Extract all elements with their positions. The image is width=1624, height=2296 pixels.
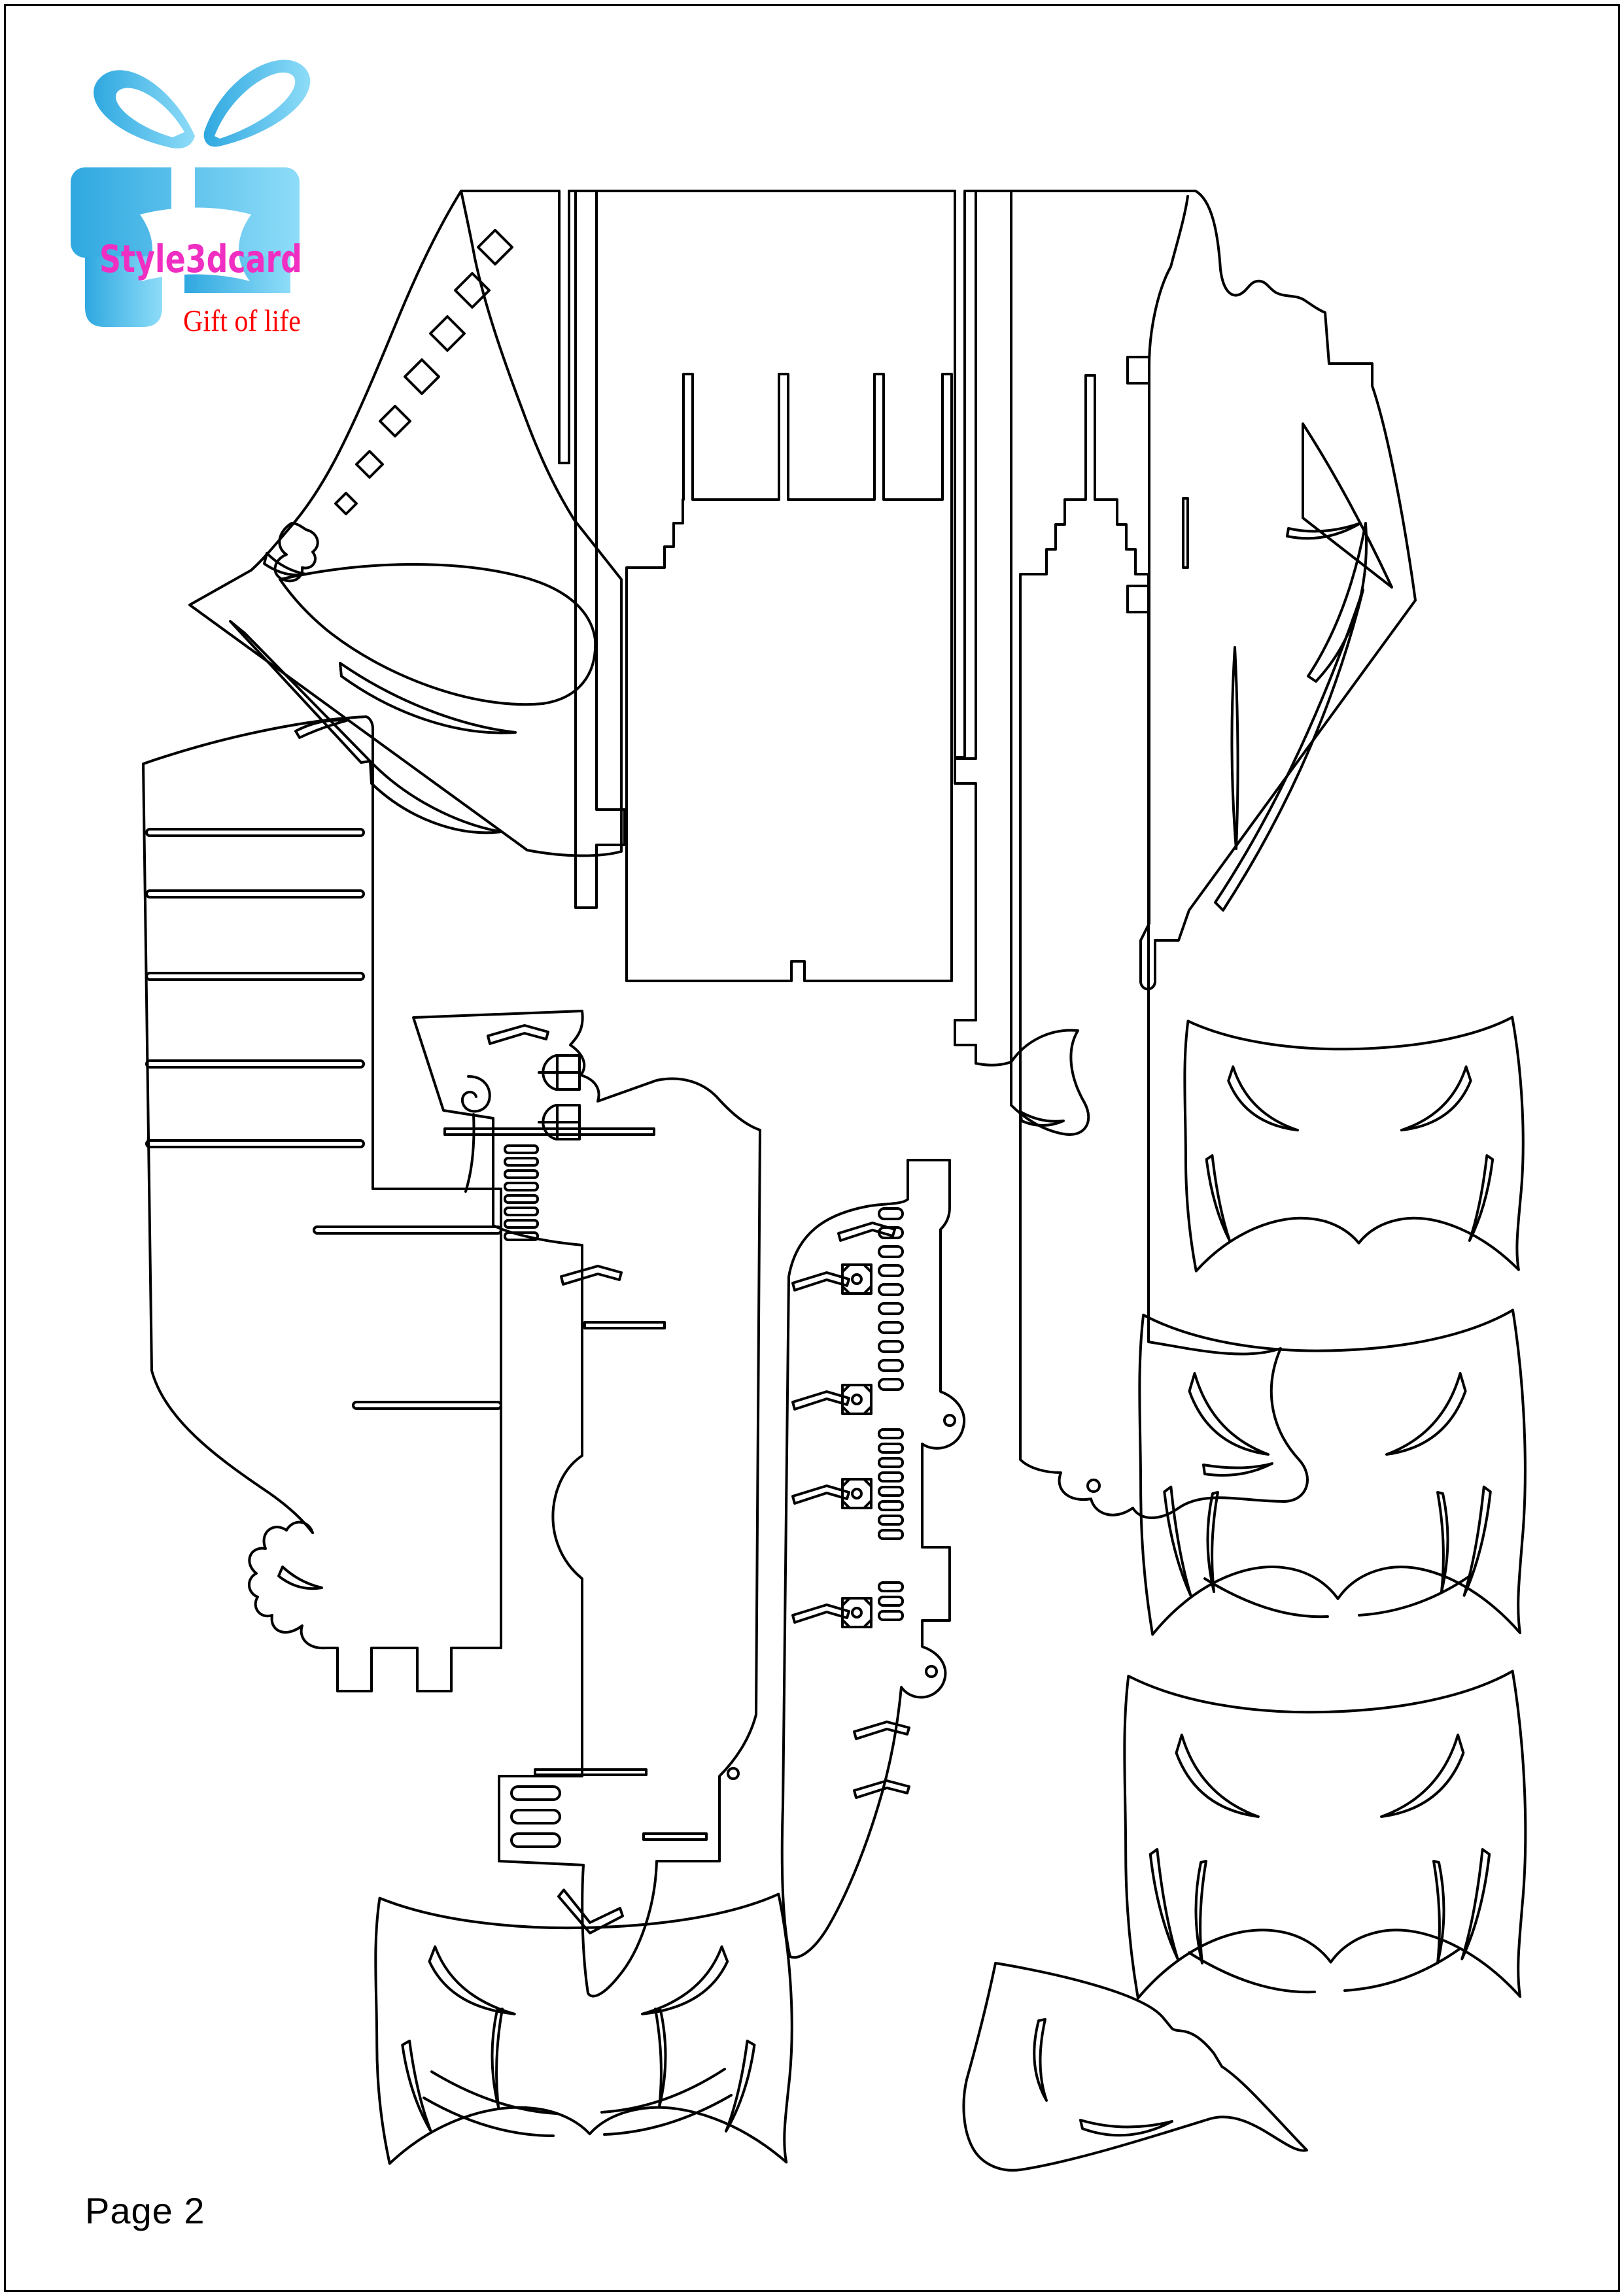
spine-strip-outline [955, 191, 1088, 1135]
ladder-slot [505, 1158, 538, 1165]
long-slit [445, 1129, 654, 1135]
chevron-slit [488, 1025, 548, 1044]
piece-deck-comb-right [1020, 375, 1307, 1518]
horizontal-slot [535, 1770, 646, 1775]
sliver-slit [1434, 1861, 1444, 1963]
diamond-cutout [356, 451, 383, 477]
superstructure-outline [413, 1011, 760, 1996]
deck-frame-outline [461, 191, 1415, 989]
sliver-slit [1034, 2019, 1046, 2100]
diamond-cutout [430, 317, 464, 351]
diamond-cutout [336, 493, 356, 514]
ladder-slot [505, 1183, 538, 1190]
smile-score-line [604, 2095, 731, 2134]
brand-name: Style3dcard [99, 237, 302, 281]
diamond-cutout [455, 273, 489, 307]
piece-deck-frame [461, 191, 1415, 989]
wedge-slit [230, 621, 370, 762]
oval-slot [511, 1787, 560, 1800]
pattern-sheet: Style3dcard Gift of life [0, 0, 1624, 2296]
piece-hull-panel-1 [1184, 1018, 1523, 1271]
pattern-page: Style3dcard Gift of life [0, 0, 1624, 2296]
slot-cutout [314, 1227, 501, 1233]
sliver-slit [492, 2009, 502, 2107]
keel-outline [782, 1160, 964, 1957]
ladder-slot [505, 1171, 538, 1178]
page-number-label: Page 2 [85, 2189, 205, 2232]
diamond-cutout [478, 230, 512, 264]
smile-score-line [1205, 1579, 1328, 1617]
piece-stern-sail [963, 1963, 1307, 2170]
smile-score-line [424, 2098, 553, 2136]
slot-cutout [353, 1402, 501, 1409]
diamond-cutout [380, 406, 410, 436]
piece-hull-panel-3 [1124, 1671, 1525, 1998]
crescent-slit [1203, 1464, 1272, 1475]
ladder-slot [505, 1208, 538, 1215]
diamond-portholes [336, 230, 512, 514]
slot-cutout [147, 891, 364, 897]
ladder-slot [505, 1220, 538, 1227]
slot-cutout [147, 973, 364, 980]
slot-cutout [147, 1061, 364, 1067]
rosette-square [842, 1479, 871, 1508]
leaf-slit [370, 761, 501, 832]
ladder-slot [505, 1146, 538, 1153]
side-plate-outline [143, 717, 501, 1691]
piece-side-plate [143, 717, 501, 1691]
slot-cutout [147, 829, 364, 836]
curl-hole [1088, 1480, 1099, 1492]
rosette-square [842, 1385, 871, 1414]
wedge-cutout [1303, 424, 1392, 587]
crescent-slit [1080, 2120, 1172, 2135]
brand-tagline: Gift of life [183, 304, 301, 338]
crescent-slit [340, 663, 515, 733]
triangle-opening [280, 564, 595, 704]
smile-score-line [1189, 1953, 1315, 1992]
ladder-slot [505, 1195, 538, 1203]
brand-logo: Style3dcard Gift of life [71, 60, 310, 338]
horizontal-slot [644, 1834, 706, 1840]
piece-deck-comb-left [627, 374, 952, 981]
crescent-slit [279, 1567, 322, 1588]
sliver-slit [1232, 647, 1237, 849]
oval-slot [511, 1834, 560, 1847]
oval-slot [511, 1810, 560, 1823]
piece-spine-strip [955, 191, 1088, 1135]
crescent-slit [1287, 523, 1360, 538]
comb-right-outline [1020, 375, 1307, 1518]
pin-hole [728, 1768, 738, 1779]
curl-hole [926, 1666, 937, 1677]
smile-score-line [1345, 1949, 1460, 1991]
oval-slot-column-middle [879, 1430, 903, 1539]
tab-notch [1128, 586, 1149, 612]
piece-keel-spine [782, 1160, 964, 1957]
piece-mast-strip [576, 191, 625, 908]
pattern-pieces [143, 191, 1525, 2170]
chevron-slit [561, 1266, 621, 1284]
diamond-cutout [405, 360, 439, 394]
sliver-slit [1207, 1492, 1218, 1592]
piece-superstructure [413, 1011, 760, 1996]
window-cutout [539, 1055, 579, 1089]
piece-hull-panel-2 [1139, 1310, 1525, 1634]
horizontal-slot [585, 1322, 665, 1328]
slot-cutout [147, 1140, 364, 1147]
slot-ladder [505, 1146, 538, 1240]
curl-hole [944, 1415, 955, 1426]
stern-sail-outline [963, 1963, 1307, 2170]
tab-notch [1128, 357, 1149, 383]
oval-slot-column-bottom [879, 1583, 903, 1620]
rosette-square [842, 1598, 871, 1627]
small-slit [1183, 498, 1188, 568]
sliver-slit [655, 2009, 666, 2107]
rosette-squares [842, 1265, 871, 1627]
